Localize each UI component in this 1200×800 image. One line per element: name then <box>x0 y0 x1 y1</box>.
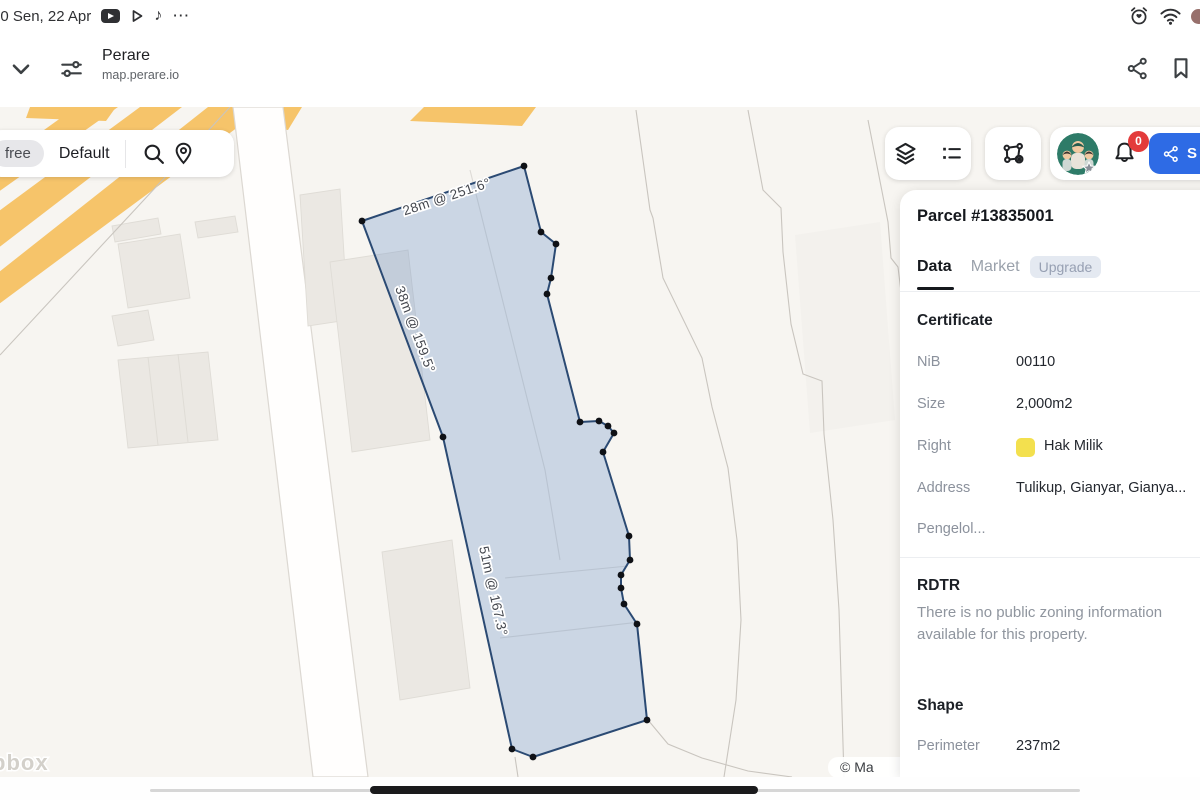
row-label: NiB <box>917 354 940 370</box>
row-value: 237m2 <box>1016 738 1060 754</box>
upgrade-badge[interactable]: Upgrade <box>1030 256 1102 278</box>
wifi-icon <box>1159 6 1182 26</box>
row-pengelola: Pengelol... <box>917 521 1200 541</box>
row-value: 00110 <box>1016 354 1055 370</box>
map-toolbar-account: 0 S <box>1050 127 1200 180</box>
certificate-heading: Certificate <box>917 312 993 330</box>
panel-title: Parcel #13835001 <box>917 207 1054 226</box>
hak-milik-color-swatch <box>1016 438 1035 457</box>
row-value: 2,000m2 <box>1016 396 1072 412</box>
rdtr-heading: RDTR <box>917 577 960 595</box>
tab-data[interactable]: Data <box>917 258 952 276</box>
row-perimeter: Perimeter 237m2 <box>917 738 1200 758</box>
share-icon[interactable] <box>1125 56 1150 86</box>
youtube-icon <box>101 9 120 23</box>
status-bar: 00 Sen, 22 Apr ♪ ⋯ <box>0 0 1200 32</box>
notifications-button[interactable]: 0 <box>1109 139 1139 169</box>
map-toolbar-draw <box>985 127 1041 180</box>
avatar[interactable] <box>1057 133 1099 175</box>
alarm-icon <box>1128 5 1150 27</box>
plan-badge[interactable]: free <box>0 140 44 167</box>
share-parcel-button[interactable]: S <box>1149 133 1200 174</box>
play-icon <box>130 9 144 23</box>
legend-list-icon[interactable] <box>936 139 966 169</box>
parcel-detail-panel: Parcel #13835001 Data Market Upgrade Cer… <box>900 190 1200 777</box>
row-label: Pengelol... <box>917 521 986 537</box>
row-right: Right Hak Milik <box>917 438 1200 458</box>
divider <box>125 140 126 168</box>
chevron-down-icon[interactable] <box>8 56 34 87</box>
location-pin-icon[interactable] <box>169 139 199 169</box>
map-attribution[interactable]: © Ma <box>828 757 904 778</box>
battery-icon <box>1191 9 1200 24</box>
device-screen: 00 Sen, 22 Apr ♪ ⋯ <box>0 0 1200 800</box>
row-size: Size 2,000m2 <box>917 396 1200 416</box>
tiktok-icon: ♪ <box>154 8 162 24</box>
shape-heading: Shape <box>917 697 964 715</box>
map-toolbar-left: free Default <box>0 130 234 177</box>
row-label: Address <box>917 480 970 496</box>
row-nib: NiB 00110 <box>917 354 1200 374</box>
row-value: Tulikup, Gianyar, Gianya... <box>1016 480 1186 496</box>
mapbox-logo[interactable]: pbox <box>0 750 49 775</box>
tab-market[interactable]: Market <box>971 258 1020 276</box>
polygon-settings-icon[interactable] <box>998 139 1028 169</box>
row-label: Size <box>917 396 945 412</box>
search-icon[interactable] <box>139 139 169 169</box>
notification-badge: 0 <box>1128 131 1149 152</box>
divider <box>900 557 1200 558</box>
divider <box>900 291 1200 292</box>
home-indicator[interactable] <box>370 786 758 794</box>
row-label: Right <box>917 438 951 454</box>
rdtr-empty-message: There is no public zoning information av… <box>917 602 1200 646</box>
row-label: Perimeter <box>917 738 980 754</box>
active-tab-indicator <box>917 287 954 290</box>
tune-icon[interactable] <box>58 56 84 87</box>
share-button-label: S <box>1187 145 1197 162</box>
bottom-strip <box>0 777 1200 800</box>
more-icon: ⋯ <box>172 6 190 26</box>
map-toolbar-layers <box>885 127 971 180</box>
row-address: Address Tulikup, Gianyar, Gianya... <box>917 480 1200 500</box>
bookmark-icon[interactable] <box>1168 55 1194 86</box>
map-style-selector[interactable]: Default <box>59 145 110 163</box>
status-datetime: 00 Sen, 22 Apr <box>0 8 91 25</box>
row-value: Hak Milik <box>1044 438 1103 454</box>
share-nodes-icon <box>1162 145 1180 163</box>
site-url[interactable]: map.perare.io <box>102 68 179 82</box>
browser-toolbar: Perare map.perare.io <box>0 32 1200 107</box>
layers-icon[interactable] <box>890 139 920 169</box>
site-name: Perare <box>102 47 179 65</box>
